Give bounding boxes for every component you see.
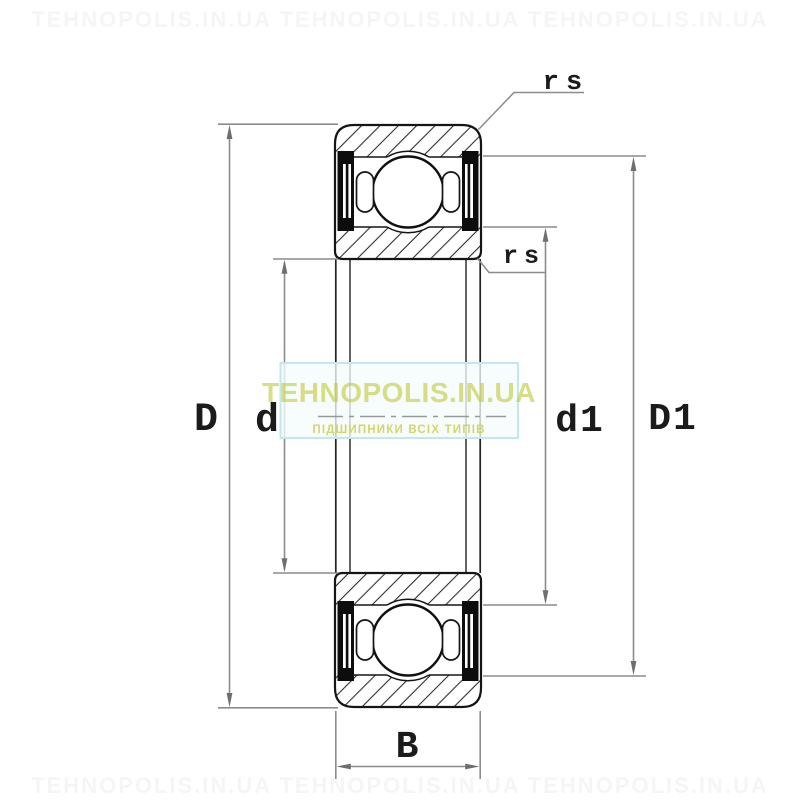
center-watermark: TEHNOPOLIS.IN.UA ПІДШИПНИКИ ВСІХ ТИПІВ [262,363,536,438]
seal-right [462,151,479,231]
label-chamfer-outer: rs [543,68,589,98]
seal-left [338,151,355,231]
ghost-watermark-top: TEHNOPOLIS.IN.UA TEHNOPOLIS.IN.UA TEHNOP… [31,7,769,32]
label-outer-shoulder: D1 [648,398,698,441]
bearing-bottom-section [335,573,481,707]
label-width: B [396,726,419,769]
bearing-drawing-canvas: TEHNOPOLIS.IN.UA TEHNOPOLIS.IN.UA TEHNOP… [0,0,800,800]
label-inner-shoulder: d1 [555,400,605,443]
bearing-diagram: TEHNOPOLIS.IN.UA TEHNOPOLIS.IN.UA TEHNOP… [0,0,800,800]
watermark-title: TEHNOPOLIS.IN.UA [262,377,536,408]
cage-left [357,172,374,212]
ghost-watermark-bottom: TEHNOPOLIS.IN.UA TEHNOPOLIS.IN.UA TEHNOP… [31,773,769,798]
watermark-subtitle: ПІДШИПНИКИ ВСІХ ТИПІВ [312,424,485,436]
ball [373,157,444,228]
label-chamfer-inner: rs [503,242,545,271]
cage-right [443,172,460,212]
bearing-top-section [335,125,481,259]
label-outer-diameter: D [194,398,218,443]
